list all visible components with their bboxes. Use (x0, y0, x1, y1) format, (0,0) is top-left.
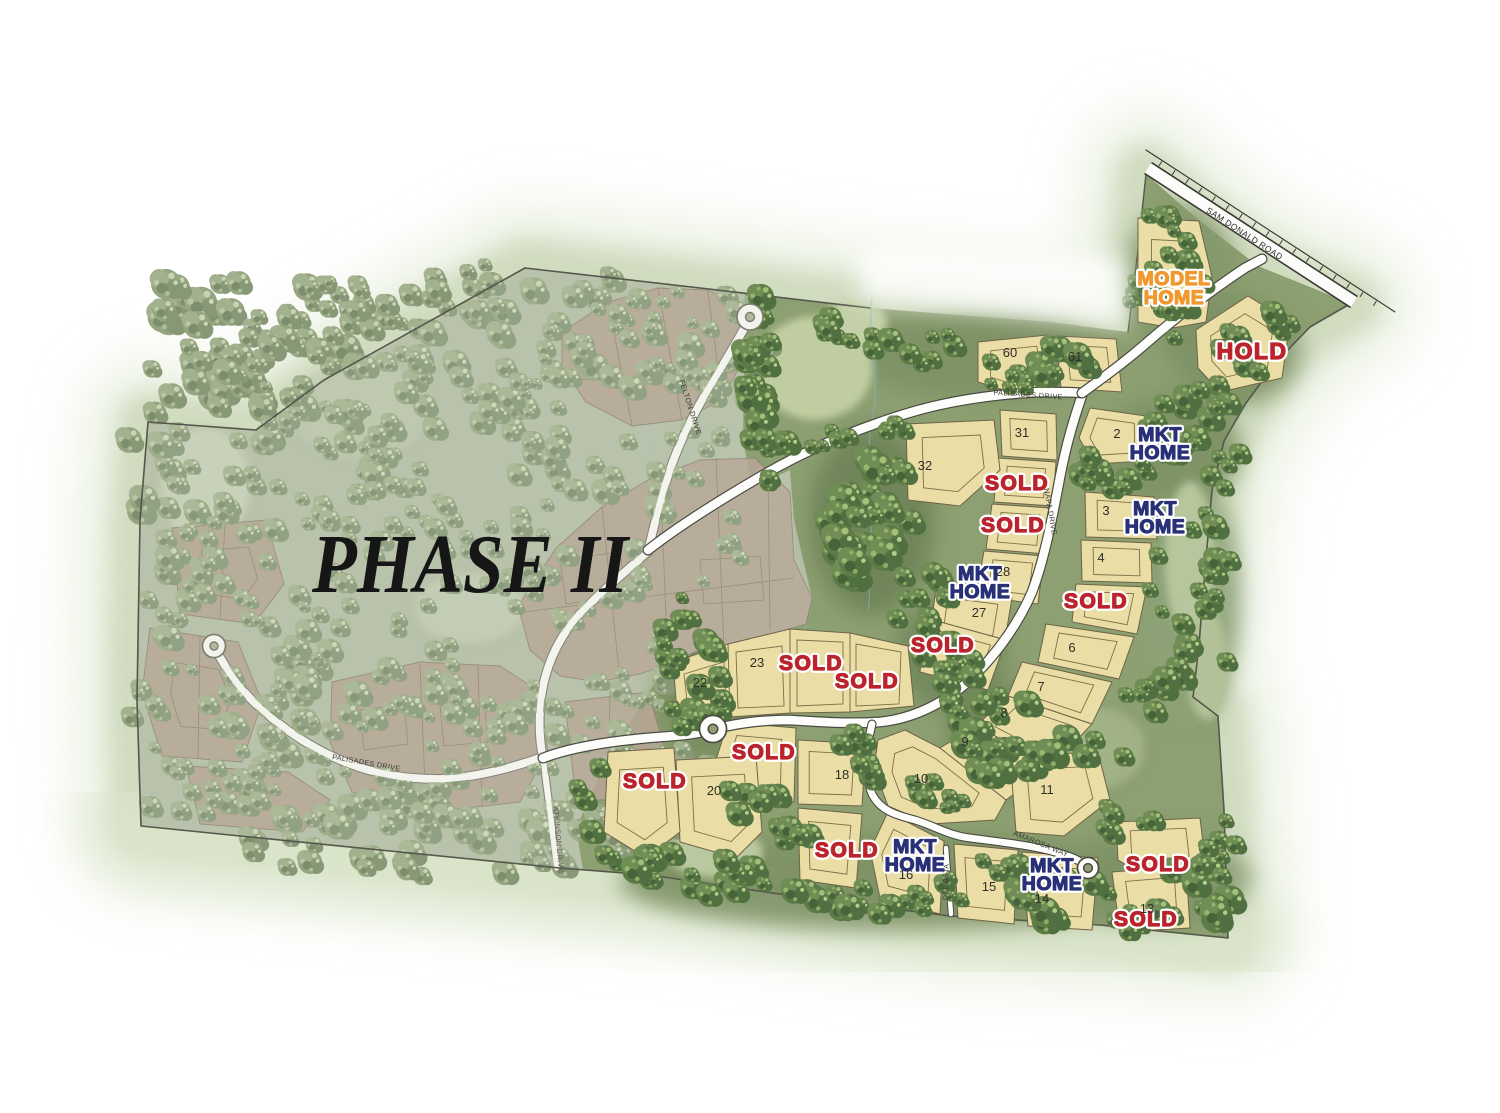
svg-text:SOLD: SOLD (1064, 590, 1128, 613)
svg-text:11: 11 (1040, 782, 1054, 797)
svg-text:60: 60 (1003, 345, 1017, 360)
svg-text:22: 22 (693, 675, 707, 690)
svg-text:SOLD: SOLD (623, 770, 687, 793)
svg-text:16: 16 (899, 867, 913, 882)
svg-text:HOME: HOME (1022, 873, 1083, 895)
svg-text:SOLD: SOLD (981, 514, 1045, 537)
svg-text:7: 7 (1037, 679, 1044, 694)
svg-text:HOME: HOME (1130, 442, 1191, 464)
svg-text:61: 61 (1068, 349, 1082, 364)
svg-text:8: 8 (1000, 705, 1007, 720)
svg-text:13: 13 (1140, 901, 1154, 916)
svg-text:DEL OSTA: DEL OSTA (942, 864, 950, 900)
svg-text:9: 9 (961, 734, 968, 749)
svg-text:28: 28 (996, 564, 1010, 579)
svg-text:HOME: HOME (885, 854, 946, 876)
svg-text:SOLD: SOLD (779, 652, 843, 675)
svg-text:10: 10 (914, 771, 928, 786)
svg-text:14: 14 (1035, 891, 1049, 906)
svg-text:HOME: HOME (1125, 516, 1186, 538)
svg-text:18: 18 (835, 767, 849, 782)
svg-text:4: 4 (1097, 550, 1104, 565)
svg-text:6: 6 (1068, 640, 1075, 655)
svg-text:SOLD: SOLD (835, 670, 899, 693)
svg-text:3: 3 (1102, 503, 1109, 518)
svg-text:SOLD: SOLD (985, 472, 1049, 495)
svg-text:HOME: HOME (950, 581, 1011, 603)
svg-text:15: 15 (982, 879, 996, 894)
svg-text:27: 27 (972, 605, 986, 620)
svg-text:SOLD: SOLD (732, 741, 796, 764)
svg-text:HOLD: HOLD (1217, 338, 1288, 364)
svg-text:23: 23 (750, 655, 764, 670)
svg-text:31: 31 (1015, 425, 1029, 440)
svg-text:PHASE II: PHASE II (311, 518, 631, 611)
svg-text:SOLD: SOLD (815, 839, 879, 862)
svg-text:SOLD: SOLD (911, 634, 975, 657)
svg-text:32: 32 (918, 458, 932, 473)
svg-text:SOLD: SOLD (1126, 853, 1190, 876)
svg-text:20: 20 (707, 783, 721, 798)
svg-text:HOME: HOME (1144, 287, 1205, 309)
svg-text:2: 2 (1113, 426, 1120, 441)
